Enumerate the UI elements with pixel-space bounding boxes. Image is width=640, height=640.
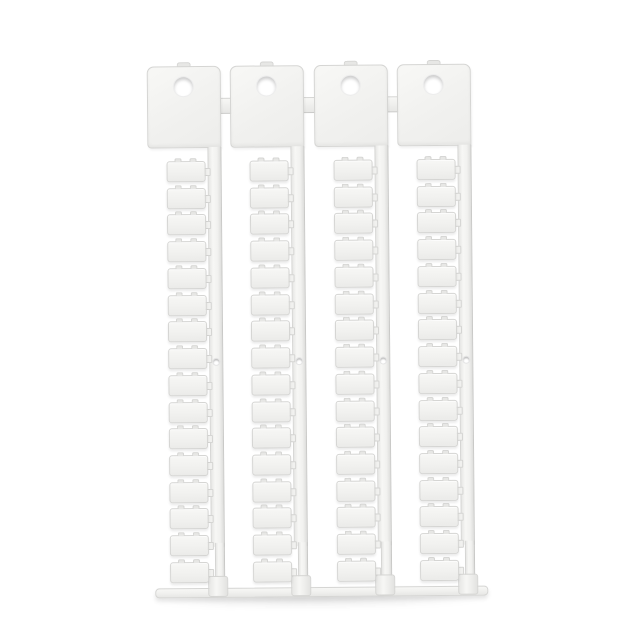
tag-mold-bump [191, 292, 198, 296]
tag-mold-bump [260, 425, 267, 429]
tag-mold-bump [440, 183, 447, 187]
tag-mold-bump [426, 316, 433, 320]
blank-marker-tag [419, 480, 458, 501]
blank-marker-tag [169, 402, 208, 423]
tag-mold-bump [273, 157, 280, 161]
blank-marker-tag [168, 321, 207, 342]
tag-mold-bump [341, 157, 348, 161]
tag-mold-bump [260, 451, 267, 455]
tag-mold-bump [261, 505, 268, 509]
tag-mold-bump [342, 264, 349, 268]
spine-foot [375, 574, 395, 595]
tag-mold-bump [192, 452, 199, 456]
tag-mold-bump [442, 423, 449, 427]
blank-marker-tag [251, 321, 290, 342]
blank-marker-tag [336, 480, 375, 501]
tag-mold-bump [357, 237, 364, 241]
tag-mold-bump [344, 451, 351, 455]
tag-mold-bump [192, 425, 199, 429]
blank-marker-tag [337, 534, 376, 555]
blank-marker-tag [169, 428, 208, 449]
tag-mold-bump [175, 265, 182, 269]
marker-card-sprue [0, 0, 640, 640]
tag-mold-bump [274, 238, 281, 242]
tag-mold-bump [276, 558, 283, 562]
spine-foot [458, 574, 478, 595]
tag-mold-bump [274, 264, 281, 268]
tag-mold-bump [442, 396, 449, 400]
blank-marker-tag [167, 268, 206, 289]
tag-mold-bump [178, 506, 185, 510]
spine-foot [208, 576, 228, 597]
tag-mold-bump [427, 423, 434, 427]
blank-marker-tag [335, 373, 374, 394]
tag-mold-bump [425, 236, 432, 240]
tag-mold-bump [275, 425, 282, 429]
tag-mold-bump [190, 238, 197, 242]
tag-mold-bump [443, 557, 450, 561]
tag-mold-bump [427, 477, 434, 481]
tag-mold-bump [358, 344, 365, 348]
tag-mold-bump [440, 236, 447, 240]
tag-mold-bump [443, 503, 450, 507]
tag-mold-bump [190, 212, 197, 216]
tag-mold-bump [176, 319, 183, 323]
tag-mold-bump [342, 183, 349, 187]
tag-mold-bump [428, 503, 435, 507]
tag-mold-bump [359, 424, 366, 428]
blank-marker-tag [337, 560, 376, 581]
tag-mold-bump [441, 263, 448, 267]
blank-marker-tag [420, 506, 459, 527]
tag-mold-bump [259, 291, 266, 295]
blank-marker-tag [334, 240, 373, 261]
tag-mold-bump [358, 317, 365, 321]
tag-mold-bump [426, 290, 433, 294]
tag-mold-bump [275, 398, 282, 402]
tag-mold-bump [359, 504, 366, 508]
tag-mold-bump [275, 451, 282, 455]
tag-mold-bump [174, 158, 181, 162]
tag-mold-bump [359, 451, 366, 455]
tag-mold-bump [175, 238, 182, 242]
tag-mold-bump [441, 343, 448, 347]
tag-mold-bump [192, 479, 199, 483]
tag-mold-bump [360, 531, 367, 535]
tag-mold-bump [175, 212, 182, 216]
tag-mold-bump [259, 238, 266, 242]
tag-mold-bump [258, 184, 265, 188]
blank-marker-tag [250, 214, 289, 235]
tag-mold-bump [176, 292, 183, 296]
tag-mold-bump [427, 370, 434, 374]
blank-marker-tag [418, 346, 457, 367]
tag-mold-bump [191, 345, 198, 349]
blank-marker-tag [252, 374, 291, 395]
tag-mold-bump [178, 532, 185, 536]
blank-marker-tag [419, 453, 458, 474]
tag-mold-bump [273, 184, 280, 188]
tag-mold-bump [442, 450, 449, 454]
blank-marker-tag [170, 562, 209, 583]
blank-marker-tag [170, 508, 209, 529]
tag-mold-bump [360, 558, 367, 562]
tag-mold-bump [177, 479, 184, 483]
tag-mold-bump [259, 264, 266, 268]
tag-mold-bump [357, 290, 364, 294]
tag-mold-bump [358, 370, 365, 374]
tag-mold-bump [177, 399, 184, 403]
blank-marker-tag [417, 212, 456, 233]
carrier-spine [374, 145, 391, 545]
blank-marker-tag [419, 426, 458, 447]
tag-mold-bump [345, 558, 352, 562]
tag-mold-bump [357, 183, 364, 187]
tag-mold-bump [428, 530, 435, 534]
hanging-hole [173, 76, 194, 97]
tag-mold-bump [261, 532, 268, 536]
tag-mold-bump [426, 263, 433, 267]
blank-marker-tag [417, 159, 456, 180]
blank-marker-tag [168, 295, 207, 316]
tag-mold-bump [357, 264, 364, 268]
blank-marker-tag [335, 347, 374, 368]
tag-mold-bump [343, 317, 350, 321]
tag-mold-bump [260, 398, 267, 402]
blank-marker-tag [169, 455, 208, 476]
blank-marker-tag [252, 347, 291, 368]
carrier-spine [207, 147, 224, 547]
tag-mold-bump [258, 211, 265, 215]
blank-marker-tag [418, 319, 457, 340]
blank-marker-tag [334, 213, 373, 234]
blank-marker-tag [335, 400, 374, 421]
tag-mold-bump [175, 185, 182, 189]
tag-mold-bump [274, 318, 281, 322]
blank-marker-tag [252, 401, 291, 422]
blank-marker-tag [253, 508, 292, 529]
blank-marker-tag [250, 160, 289, 181]
tag-mold-bump [176, 372, 183, 376]
hanging-hole [340, 75, 361, 96]
blank-marker-tag [419, 399, 458, 420]
carrier-spine [458, 145, 475, 545]
blank-marker-tag [170, 535, 209, 556]
blank-marker-tag [251, 240, 290, 261]
tag-mold-bump [275, 344, 282, 348]
tag-mold-bump [344, 424, 351, 428]
tag-mold-bump [441, 290, 448, 294]
tag-mold-bump [427, 397, 434, 401]
blank-marker-tag [168, 348, 207, 369]
tag-mold-bump [442, 370, 449, 374]
carrier-spine [291, 146, 308, 546]
blank-marker-tag [253, 534, 292, 555]
tag-mold-bump [258, 157, 265, 161]
blank-marker-tag [169, 482, 208, 503]
blank-marker-tag [167, 214, 206, 235]
tag-mold-bump [343, 397, 350, 401]
blank-marker-tag [251, 267, 290, 288]
tag-mold-bump [343, 344, 350, 348]
blank-marker-tag [251, 294, 290, 315]
tag-mold-bump [425, 156, 432, 160]
tag-mold-bump [276, 505, 283, 509]
blank-marker-tag [167, 188, 206, 209]
blank-marker-tag [336, 454, 375, 475]
blank-marker-tag [167, 161, 206, 182]
tag-mold-bump [273, 211, 280, 215]
tag-mold-bump [177, 425, 184, 429]
product-photo [0, 0, 640, 640]
blank-marker-tag [168, 375, 207, 396]
tag-mold-bump [261, 478, 268, 482]
blank-marker-tag [336, 507, 375, 528]
tag-mold-bump [359, 477, 366, 481]
tag-mold-bump [276, 478, 283, 482]
tag-mold-bump [274, 291, 281, 295]
blank-marker-tag [334, 186, 373, 207]
tag-mold-bump [442, 477, 449, 481]
blank-marker-tag [418, 266, 457, 287]
blank-marker-tag [417, 239, 456, 260]
tag-mold-bump [440, 156, 447, 160]
tag-mold-bump [356, 157, 363, 161]
blank-marker-tag [252, 428, 291, 449]
blank-marker-tag [253, 561, 292, 582]
tag-mold-bump [358, 397, 365, 401]
tag-mold-bump [275, 371, 282, 375]
spine-foot [292, 575, 312, 596]
tag-mold-bump [193, 506, 200, 510]
blank-marker-tag [333, 160, 372, 181]
tag-mold-bump [443, 530, 450, 534]
blank-marker-tag [167, 241, 206, 262]
tag-mold-bump [193, 559, 200, 563]
tag-mold-bump [193, 532, 200, 536]
blank-marker-tag [419, 373, 458, 394]
blank-marker-tag [336, 427, 375, 448]
tag-mold-bump [259, 318, 266, 322]
tag-mold-bump [192, 399, 199, 403]
tag-mold-bump [342, 237, 349, 241]
tag-mold-bump [190, 265, 197, 269]
tag-mold-bump [428, 557, 435, 561]
tag-mold-bump [342, 290, 349, 294]
tag-mold-bump [260, 345, 267, 349]
blank-marker-tag [334, 293, 373, 314]
tag-mold-bump [276, 532, 283, 536]
tag-mold-bump [440, 209, 447, 213]
tag-mold-bump [190, 185, 197, 189]
blank-marker-tag [417, 186, 456, 207]
tag-mold-bump [189, 158, 196, 162]
spine-hole [212, 358, 220, 366]
blank-marker-tag [334, 266, 373, 287]
blank-marker-tag [253, 481, 292, 502]
blank-marker-tag [418, 292, 457, 313]
tag-mold-bump [427, 450, 434, 454]
tag-mold-bump [426, 343, 433, 347]
tag-mold-bump [178, 559, 185, 563]
blank-marker-tag [335, 320, 374, 341]
tag-mold-bump [177, 452, 184, 456]
blank-marker-tag [420, 533, 459, 554]
tag-mold-bump [191, 372, 198, 376]
tag-mold-bump [176, 345, 183, 349]
tag-mold-bump [260, 371, 267, 375]
blank-marker-tag [420, 560, 459, 581]
tag-mold-bump [425, 209, 432, 213]
spine-hole [379, 356, 387, 364]
blank-marker-tag [250, 187, 289, 208]
tag-mold-bump [441, 316, 448, 320]
tag-mold-bump [357, 210, 364, 214]
tag-mold-bump [345, 531, 352, 535]
tag-mold-bump [425, 183, 432, 187]
tag-mold-bump [343, 371, 350, 375]
blank-marker-tag [252, 454, 291, 475]
tag-mold-bump [342, 210, 349, 214]
tag-mold-bump [344, 477, 351, 481]
tag-mold-bump [261, 558, 268, 562]
tag-mold-bump [191, 318, 198, 322]
tag-mold-bump [344, 504, 351, 508]
